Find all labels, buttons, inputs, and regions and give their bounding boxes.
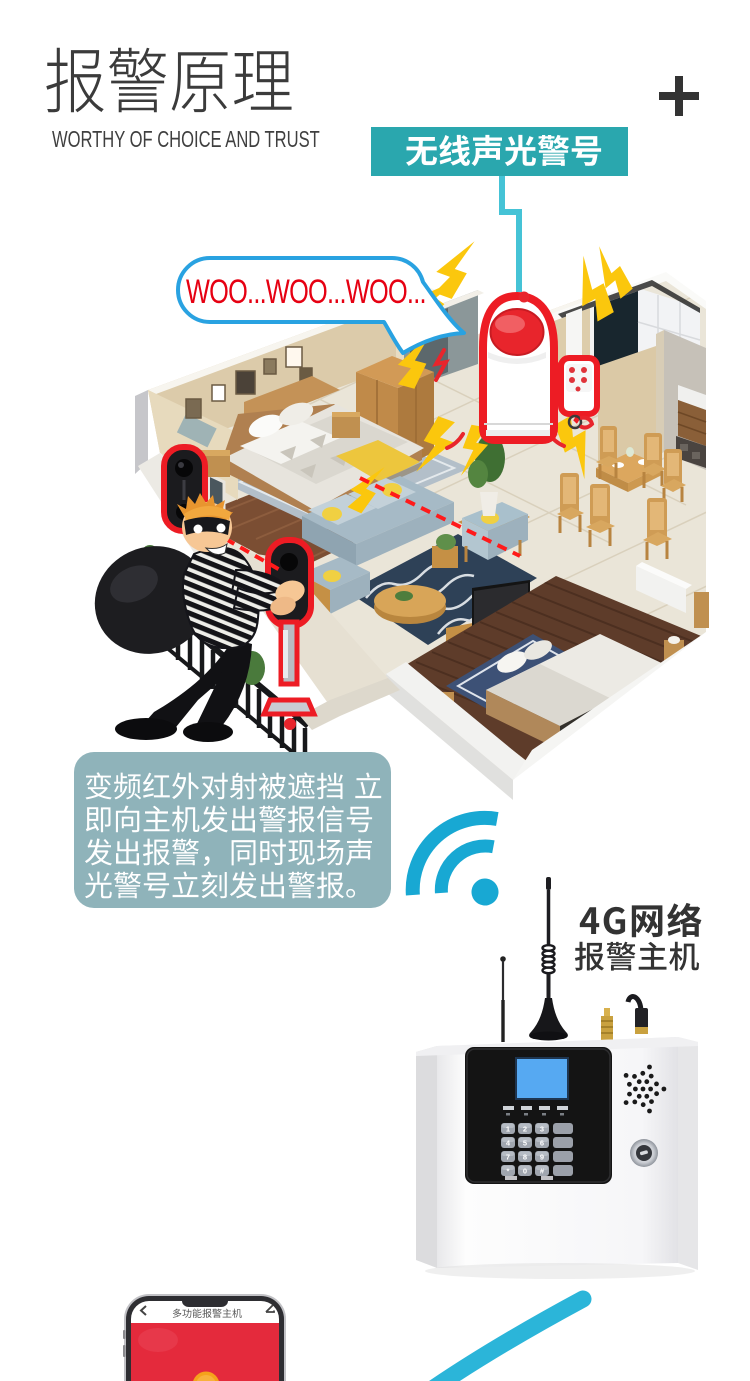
- svg-text:6: 6: [540, 1139, 544, 1148]
- svg-text:0: 0: [523, 1167, 527, 1176]
- svg-text:1: 1: [506, 1125, 510, 1134]
- svg-text:3: 3: [540, 1125, 544, 1134]
- svg-text:8: 8: [523, 1153, 527, 1162]
- svg-text:9: 9: [540, 1153, 544, 1162]
- svg-text:7: 7: [506, 1153, 510, 1162]
- svg-text:WOO...WOO...WOO...: WOO...WOO...WOO...: [186, 274, 426, 311]
- svg-text:*: *: [507, 1167, 510, 1176]
- svg-text:5: 5: [523, 1139, 527, 1148]
- svg-text:2: 2: [523, 1125, 527, 1134]
